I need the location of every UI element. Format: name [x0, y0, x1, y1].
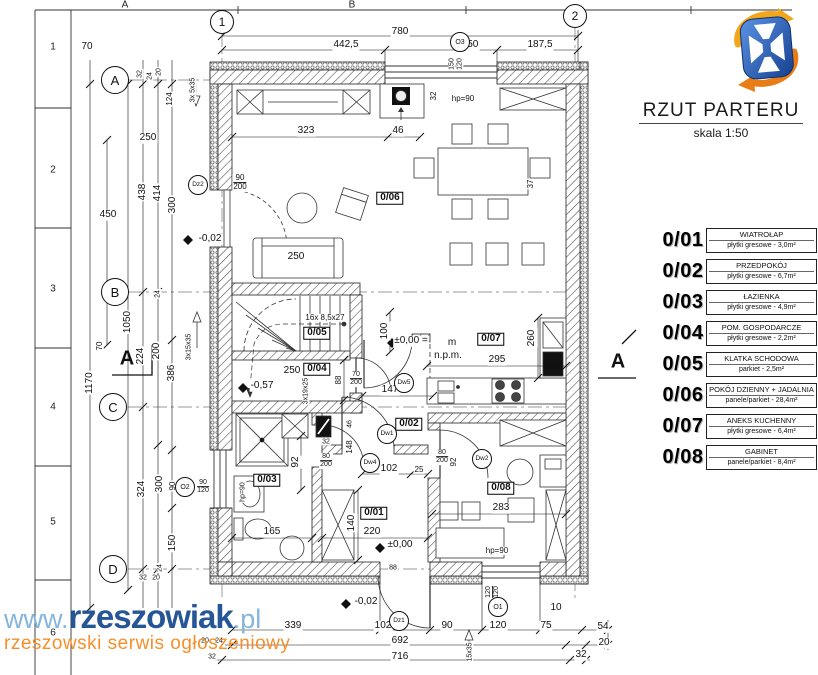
legend-room-number: 0/02: [660, 260, 706, 283]
legend-room-finish: płytki gresowe - 4,9m²: [709, 304, 814, 311]
watermark-tagline: rzeszowski serwis ogłoszeniowy: [4, 634, 290, 653]
watermark-tld: .pl: [233, 606, 262, 633]
watermark: www.rzeszowiak.pl rzeszowski serwis ogło…: [4, 600, 290, 653]
room-legend: 0/01WIATROŁAPpłytki gresowe - 3,0m²0/02P…: [660, 228, 817, 476]
site-logo-icon: [722, 6, 808, 94]
legend-row: 0/06POKÓJ DZIENNY + JADALNIApanele/parki…: [660, 383, 817, 408]
legend-row: 0/03ŁAZIENKApłytki gresowe - 4,9m²: [660, 290, 817, 315]
page-title: RZUT PARTERU: [639, 100, 804, 124]
legend-room-finish: płytki gresowe - 2,2m²: [709, 335, 814, 342]
watermark-www: www.: [4, 606, 69, 633]
furniture: [234, 84, 566, 560]
legend-row: 0/04POM. GOSPODARCZEpłytki gresowe - 2,2…: [660, 321, 817, 346]
legend-room-name: ANEKS KUCHENNY: [709, 416, 814, 427]
legend-room-finish: parkiet - 2,5m²: [709, 366, 814, 373]
legend-room-name: ŁAZIENKA: [709, 292, 814, 303]
title-block: RZUT PARTERU skala 1:50: [636, 100, 806, 140]
legend-row: 0/02PRZEDPOKÓJpłytki gresowe - 6,7m²: [660, 259, 817, 284]
legend-room-number: 0/08: [660, 446, 706, 469]
legend-room-box: PRZEDPOKÓJpłytki gresowe - 6,7m²: [706, 259, 817, 284]
legend-room-name: KLATKA SCHODOWA: [709, 354, 814, 365]
legend-row: 0/01WIATROŁAPpłytki gresowe - 3,0m²: [660, 228, 817, 253]
legend-room-number: 0/01: [660, 229, 706, 252]
legend-row: 0/05KLATKA SCHODOWAparkiet - 2,5m²: [660, 352, 817, 377]
stairs: [236, 296, 346, 398]
legend-room-finish: płytki gresowe - 6,4m²: [709, 428, 814, 435]
legend-room-box: ŁAZIENKApłytki gresowe - 4,9m²: [706, 290, 817, 315]
legend-room-number: 0/07: [660, 415, 706, 438]
legend-room-number: 0/05: [660, 353, 706, 376]
legend-room-number: 0/06: [660, 384, 706, 407]
legend-room-name: POM. GOSPODARCZE: [709, 323, 814, 334]
legend-room-number: 0/03: [660, 291, 706, 314]
legend-room-box: POKÓJ DZIENNY + JADALNIApanele/parkiet -…: [706, 383, 817, 408]
legend-room-box: POM. GOSPODARCZEpłytki gresowe - 2,2m²: [706, 321, 817, 346]
legend-room-finish: płytki gresowe - 3,0m²: [709, 242, 814, 249]
legend-room-box: ANEKS KUCHENNYpłytki gresowe - 6,4m²: [706, 414, 817, 439]
legend-room-box: KLATKA SCHODOWAparkiet - 2,5m²: [706, 352, 817, 377]
legend-room-box: WIATROŁAPpłytki gresowe - 3,0m²: [706, 228, 817, 253]
legend-room-name: GABINET: [709, 447, 814, 458]
legend-room-name: POKÓJ DZIENNY + JADALNIA: [709, 385, 814, 396]
legend-room-finish: płytki gresowe - 6,7m²: [709, 273, 814, 280]
legend-room-name: PRZEDPOKÓJ: [709, 261, 814, 272]
legend-row: 0/08GABINETpanele/parkiet - 8,4m²: [660, 445, 817, 470]
legend-room-box: GABINETpanele/parkiet - 8,4m²: [706, 445, 817, 470]
legend-room-finish: panele/parkiet - 28,4m²: [709, 397, 814, 404]
legend-row: 0/07ANEKS KUCHENNYpłytki gresowe - 6,4m²: [660, 414, 817, 439]
drawing-scale: skala 1:50: [636, 126, 806, 140]
floor-plan-page: 780442,5150187,5701501203224201243x 5x35…: [0, 0, 818, 675]
legend-room-name: WIATROŁAP: [709, 230, 814, 241]
legend-room-finish: panele/parkiet - 8,4m²: [709, 459, 814, 466]
legend-room-number: 0/04: [660, 322, 706, 345]
watermark-name: rzeszowiak: [69, 600, 233, 633]
